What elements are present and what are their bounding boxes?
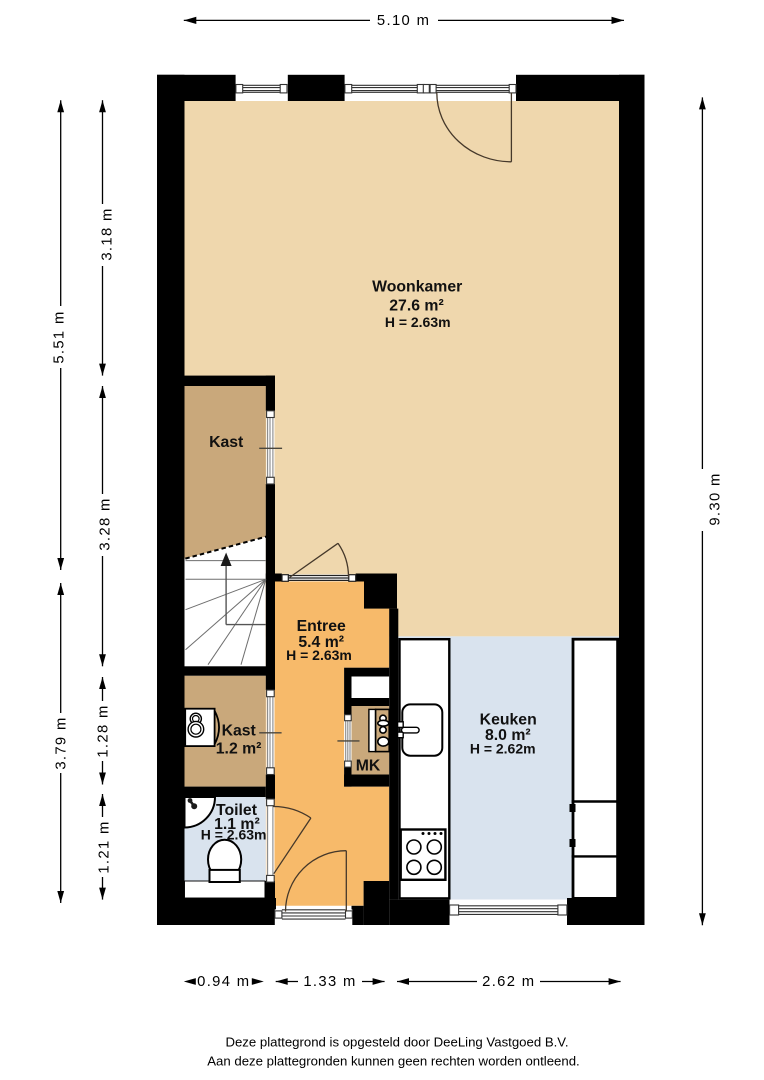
svg-text:1.33 m: 1.33 m <box>303 974 356 990</box>
svg-text:3.28 m: 3.28 m <box>98 497 114 550</box>
svg-text:5.10 m: 5.10 m <box>377 13 430 29</box>
svg-text:H = 2.63m: H = 2.63m <box>385 314 451 330</box>
svg-text:5.51 m: 5.51 m <box>52 310 68 363</box>
svg-text:H = 2.63m: H = 2.63m <box>286 647 352 663</box>
svg-text:2.62 m: 2.62 m <box>482 974 535 990</box>
svg-text:Aan deze plattegronden kunnen: Aan deze plattegronden kunnen geen recht… <box>207 1053 579 1068</box>
svg-text:Kast: Kast <box>209 434 244 451</box>
svg-text:1.2 m²: 1.2 m² <box>216 740 262 757</box>
svg-text:Kast: Kast <box>222 723 257 740</box>
svg-text:Deze plattegrond is opgesteld: Deze plattegrond is opgesteld door DeeLi… <box>225 1034 568 1049</box>
svg-text:Entree: Entree <box>297 618 346 635</box>
svg-text:3.79 m: 3.79 m <box>54 716 70 769</box>
svg-text:H = 2.62m: H = 2.62m <box>470 741 536 757</box>
svg-text:Woonkamer: Woonkamer <box>372 279 462 296</box>
svg-text:27.6 m²: 27.6 m² <box>389 298 443 315</box>
svg-text:3.18 m: 3.18 m <box>100 207 116 260</box>
svg-text:H = 2.63m: H = 2.63m <box>201 827 267 843</box>
svg-text:1.28 m: 1.28 m <box>96 704 112 757</box>
svg-text:Keuken: Keuken <box>480 711 537 728</box>
svg-text:9.30 m: 9.30 m <box>707 472 723 525</box>
svg-text:MK: MK <box>356 757 381 774</box>
svg-text:1.21 m: 1.21 m <box>97 820 113 873</box>
svg-text:0.94 m: 0.94 m <box>197 974 250 990</box>
